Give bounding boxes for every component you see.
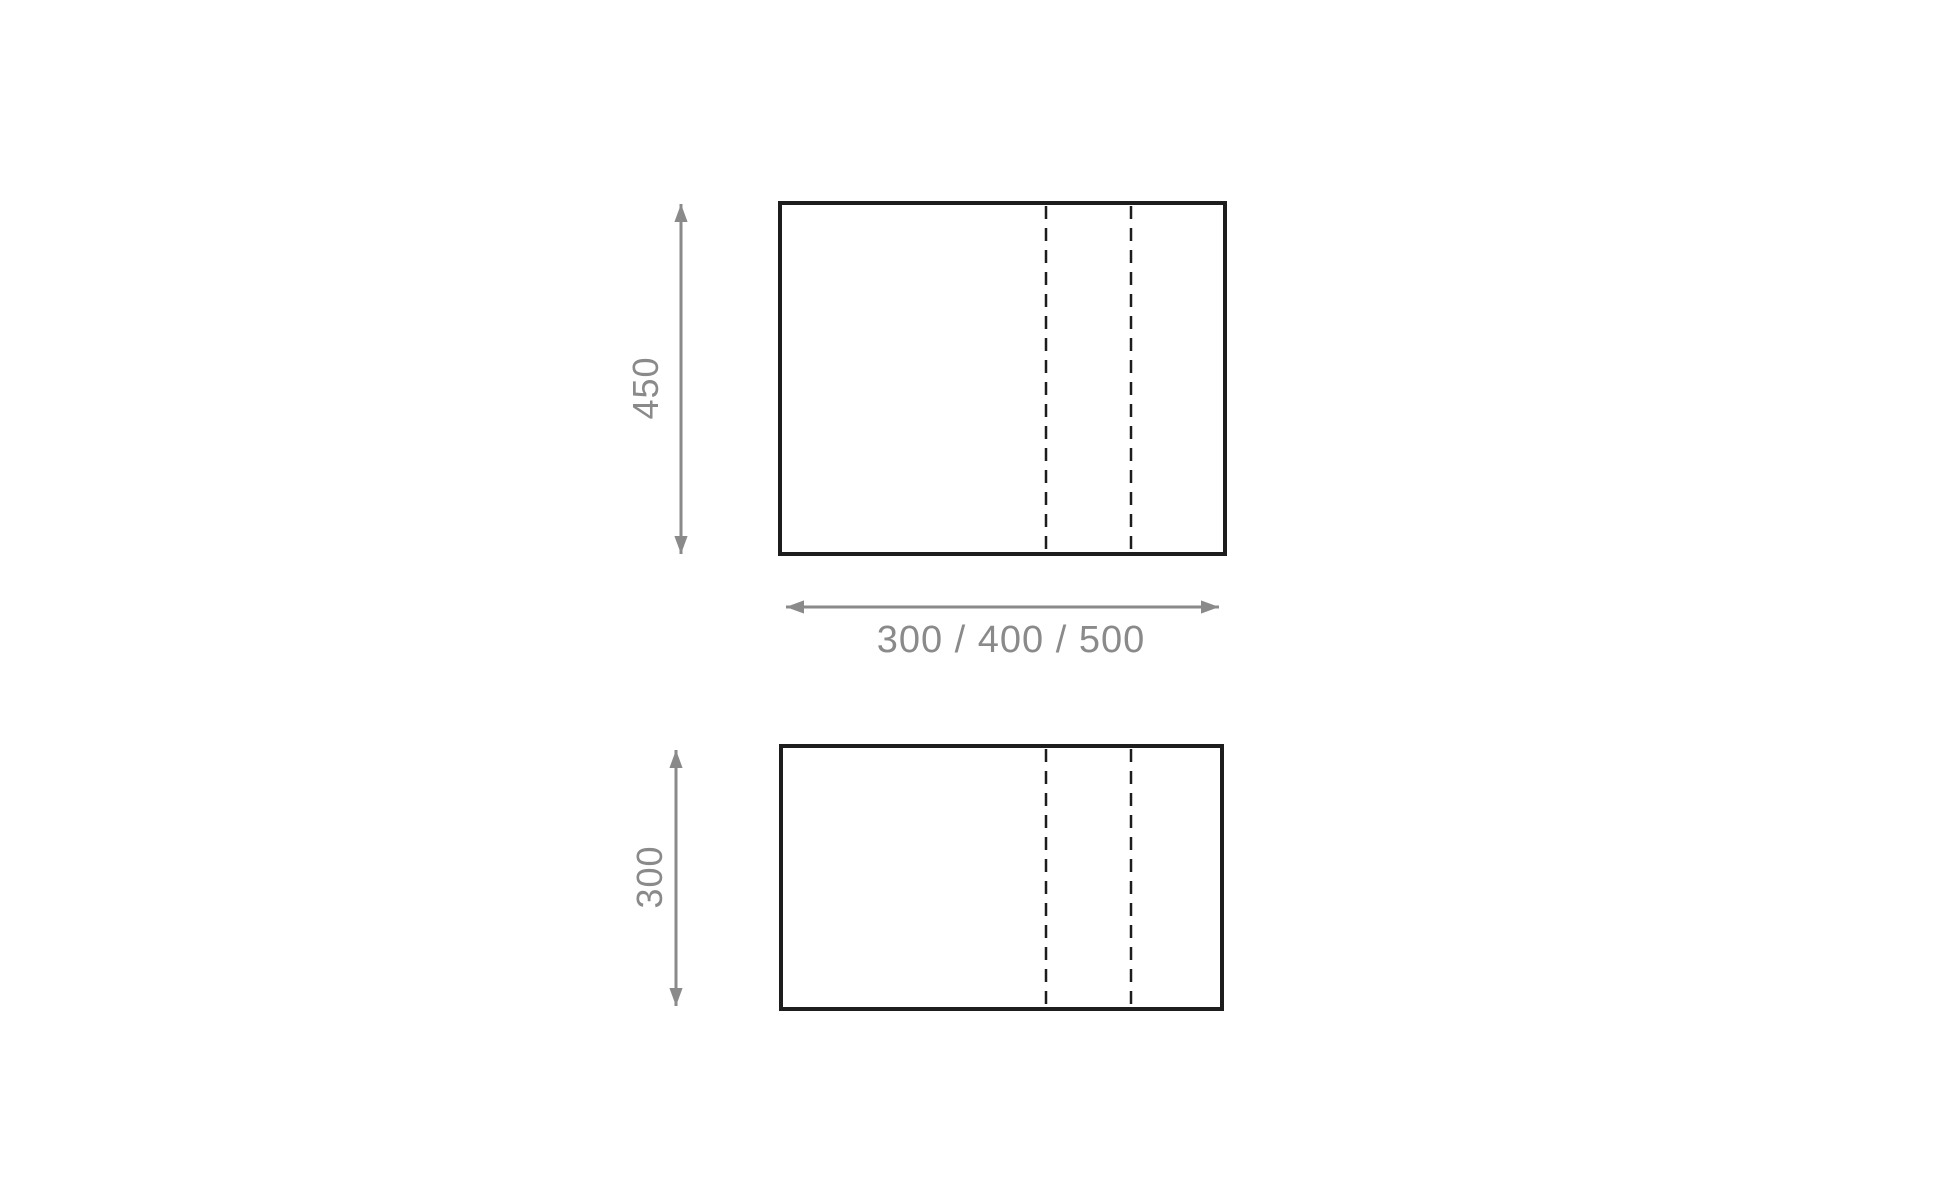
front-view-height-label: 450 <box>628 356 664 419</box>
dimension-drawing <box>0 0 1934 1200</box>
diagram-canvas: 450 300 / 400 / 500 300 <box>0 0 1934 1200</box>
plan-view-outline <box>781 746 1222 1009</box>
plan-view-height-label: 300 <box>632 845 668 908</box>
width-options-label: 300 / 400 / 500 <box>877 621 1146 659</box>
front-view-outline <box>780 203 1225 554</box>
